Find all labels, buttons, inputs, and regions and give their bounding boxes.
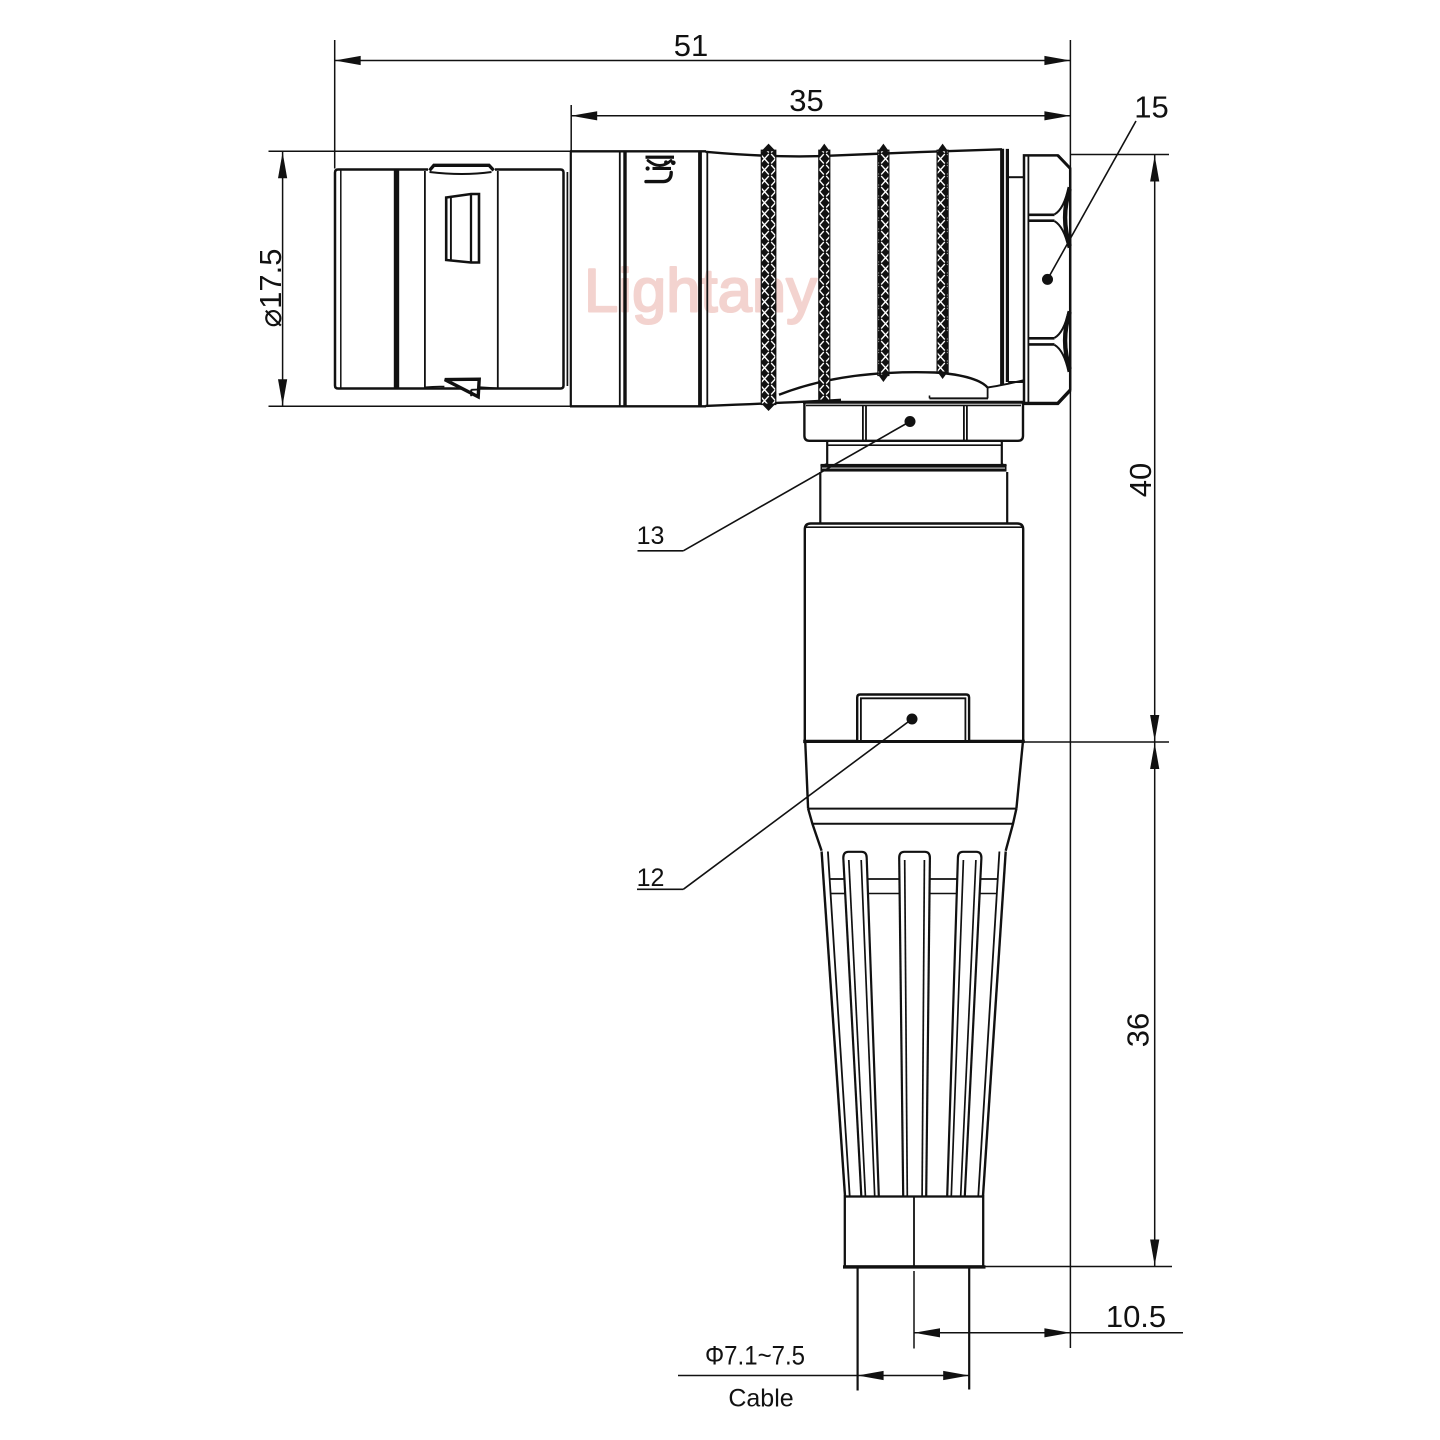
svg-text:13: 13 (637, 522, 665, 550)
svg-text:51: 51 (674, 28, 708, 63)
svg-text:12: 12 (637, 864, 665, 892)
svg-text:15: 15 (1134, 90, 1168, 125)
svg-text:Cable: Cable (728, 1385, 793, 1413)
svg-text:10.5: 10.5 (1106, 1299, 1166, 1334)
svg-text:⌀17.5: ⌀17.5 (253, 249, 288, 328)
svg-text:40: 40 (1123, 463, 1158, 497)
svg-text:35: 35 (789, 83, 823, 118)
svg-text:36: 36 (1121, 1013, 1156, 1047)
svg-text:Φ7.1~7.5: Φ7.1~7.5 (705, 1341, 805, 1371)
